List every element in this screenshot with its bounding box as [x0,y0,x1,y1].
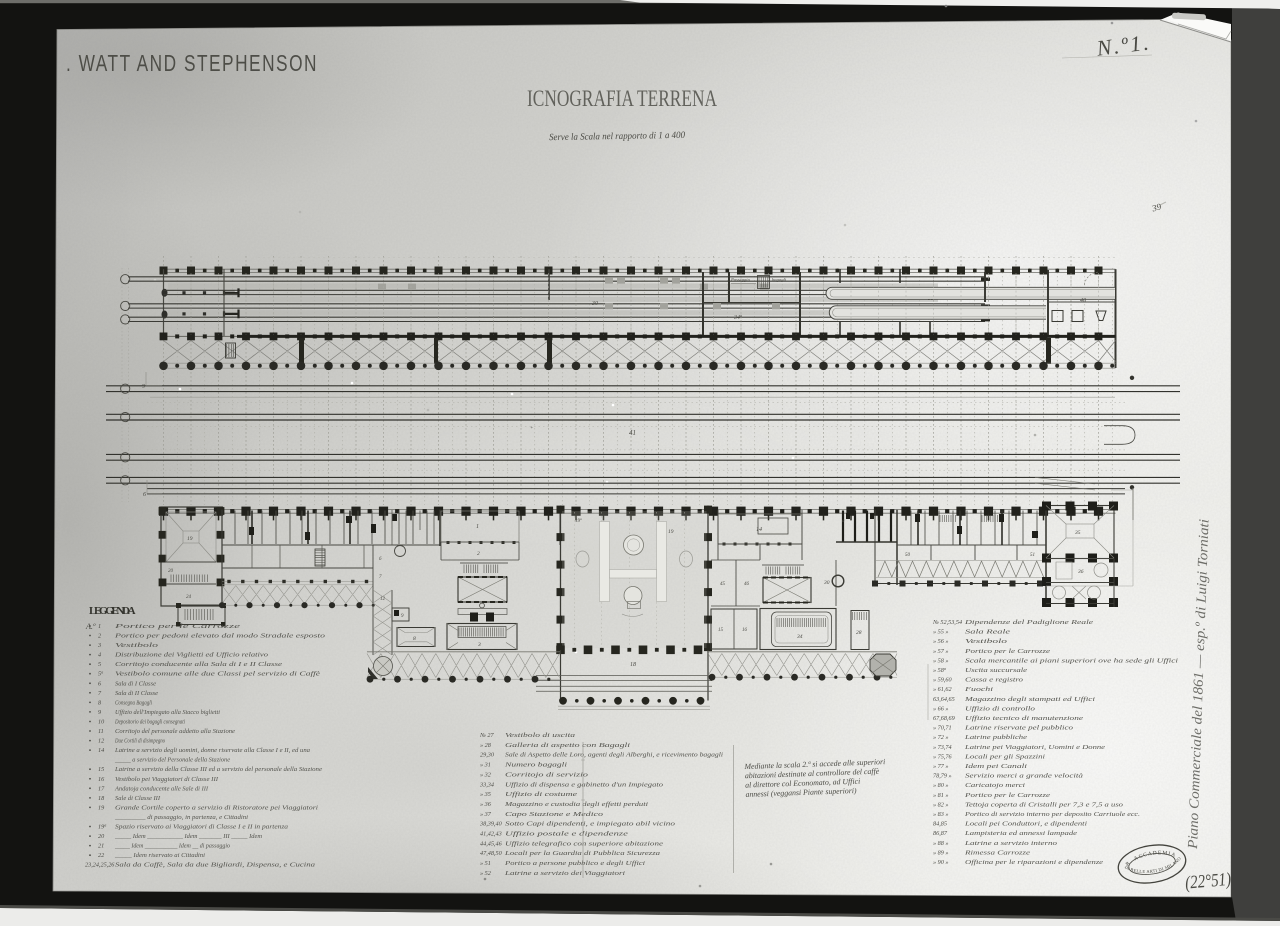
svg-text:Passeggio: Passeggio [730,277,751,282]
svg-text:Locali per gli Spazzini: Locali per gli Spazzini [964,753,1046,760]
svg-text:21: 21 [98,843,104,850]
svg-text:Fuochi: Fuochi [963,686,993,693]
svg-text:17: 17 [98,785,105,792]
svg-text:Sala da Caffè, Sala da due Big: Sala da Caffè, Sala da due Bigliardi, Di… [115,862,316,869]
svg-text:34: 34 [796,633,803,640]
svg-text:10: 10 [98,719,105,726]
svg-text:Portico di servizio interno pe: Portico di servizio interno per deposito… [964,811,1141,818]
svg-text:16: 16 [98,776,105,783]
svg-text:5: 5 [98,661,101,668]
svg-text:38,39,40: 38,39,40 [479,821,503,828]
svg-text:» 58ª: » 58ª [933,667,946,674]
svg-text:» 35: » 35 [480,791,491,798]
svg-text:Due Cortili di disimpegno: Due Cortili di disimpegno [114,738,165,745]
svg-text:bagagli: bagagli [772,277,787,282]
svg-text:» 66 »: » 66 » [933,705,948,712]
svg-text:Latrine a servizio interno: Latrine a servizio interno [964,840,1057,847]
svg-text:Cassa e registro: Cassa e registro [965,677,1023,684]
svg-text:» 37: » 37 [480,811,492,818]
svg-text:6: 6 [143,492,146,498]
svg-text:Consegna Bagagli: Consegna Bagagli [115,699,152,706]
svg-text:Latrine a servizio della Class: Latrine a servizio della Classe III ed a… [114,766,322,773]
svg-text:Lampisteria ed annessi lampade: Lampisteria ed annessi lampade [964,830,1078,837]
svg-text:Sala di I Classe: Sala di I Classe [115,680,156,687]
svg-text:19: 19 [98,804,104,811]
svg-text:20: 20 [98,833,105,840]
svg-text:_____ Idem ___________ Idem __: _____ Idem ___________ Idem _______ III … [114,833,262,840]
svg-text:67,68,69: 67,68,69 [933,715,955,722]
svg-text:Latrine riservate pel pubblico: Latrine riservate pel pubblico [964,725,1073,732]
svg-text:Idem pei Canali: Idem pei Canali [963,763,1027,770]
svg-text:» 61,62: » 61,62 [933,686,952,693]
svg-text:» 31: » 31 [480,762,491,769]
svg-text:» 83 »: » 83 » [933,811,948,818]
svg-text:Latrine a servizio dei Viaggia: Latrine a servizio dei Viaggiatori [504,870,626,877]
svg-text:11: 11 [98,728,104,735]
svg-text:16: 16 [742,628,748,633]
svg-text:Portico a persone pubblico e d: Portico a persone pubblico e degli Uffic… [504,860,646,867]
svg-text:Andatoja conducente alle Sale: Andatoja conducente alle Sale di III [114,785,209,792]
svg-text:Corritojo del personale addett: Corritojo del personale addetto alla Sta… [115,728,235,735]
svg-text:Scala mercantile ai piani supe: Scala mercantile ai piani superiori ove … [965,657,1178,664]
svg-text:36: 36 [1077,569,1084,575]
svg-text:Sala di II Classe: Sala di II Classe [115,690,158,697]
svg-text:» 51: » 51 [480,860,491,867]
svg-text:Rimessa Carrozze: Rimessa Carrozze [964,849,1031,856]
svg-text:Sala Reale: Sala Reale [965,629,1010,636]
svg-text:Portico per le Carrozze: Portico per le Carrozze [964,648,1051,655]
svg-text:24: 24 [186,595,192,600]
svg-text:2: 2 [98,633,101,640]
svg-text:» 90 »: » 90 » [933,859,948,866]
svg-text:» 73,74: » 73,74 [933,744,952,751]
svg-text:Corritojo conducente alla Sala: Corritojo conducente alla Sala di I e II… [115,661,282,668]
svg-text:Latrine a servizio degli uomin: Latrine a servizio degli uomini, donne r… [114,747,311,754]
svg-text:Tettoja coperta di Cristalli p: Tettoja coperta di Cristalli per 7,3 e 7… [965,801,1123,808]
svg-text:Uffizio di costume: Uffizio di costume [505,791,577,798]
svg-text:3: 3 [97,642,101,649]
svg-text:19ª: 19ª [575,518,582,524]
svg-text:Vestibolo pei Viaggiatori di C: Vestibolo pei Viaggiatori di Classe III [115,776,219,783]
svg-text:45: 45 [720,582,726,587]
svg-text:Sale di Aspetto delle Loro, ag: Sale di Aspetto delle Loro, agenti degli… [505,752,723,759]
svg-text:» 82 »: » 82 » [933,801,948,808]
svg-text:41,42,43: 41,42,43 [480,831,502,838]
svg-text:Locali pei Conduttori, e dipen: Locali pei Conduttori, e dipendenti [964,821,1088,828]
svg-text:№ 52,53,54: № 52,53,54 [932,619,962,626]
svg-text:Uffizio telegrafico con superi: Uffizio telegrafico con superiore abitaz… [505,840,663,847]
svg-text:. WATT AND STEPHENSON: . WATT AND STEPHENSON [66,50,318,76]
svg-text:30: 30 [823,580,830,586]
svg-text:63,64,65: 63,64,65 [933,696,955,703]
svg-text:19ª: 19ª [98,824,106,831]
svg-text:Vestibolo di uscita: Vestibolo di uscita [505,732,576,739]
svg-text:40: 40 [1080,297,1086,304]
svg-text:» 56 »: » 56 » [933,638,948,645]
svg-text:Uscita succursale: Uscita succursale [965,667,1027,674]
svg-text:» 28: » 28 [480,742,492,749]
svg-text:» 32: » 32 [480,771,491,778]
svg-text:34ª: 34ª [733,314,742,321]
svg-text:» 58 »: » 58 » [933,657,948,664]
svg-text:15: 15 [98,766,104,773]
svg-text:9: 9 [98,709,101,716]
svg-text:» 77 »: » 77 » [933,763,948,770]
svg-text:29,30: 29,30 [480,752,495,759]
svg-text:Uffizio tecnico di manutenzion: Uffizio tecnico di manutenzione [965,715,1083,722]
svg-text:86,87: 86,87 [933,830,948,837]
svg-text:Caricatojo merci: Caricatojo merci [965,782,1025,789]
svg-text:84,85: 84,85 [933,821,947,828]
svg-text:» 70,71: » 70,71 [933,725,952,732]
svg-text:» 89 »: » 89 » [933,849,948,856]
svg-text:28: 28 [856,630,862,636]
svg-text:18: 18 [630,662,636,668]
svg-text:» 36: » 36 [480,801,492,808]
svg-text:19: 19 [187,536,193,542]
svg-text:51: 51 [1030,553,1035,558]
svg-text:Locali per la Guardia di Pubbl: Locali per la Guardia di Pubblica Sicure… [504,850,661,857]
svg-text:8: 8 [413,636,416,642]
svg-text:Corritojo di servizio: Corritojo di servizio [505,771,589,778]
svg-text:44,45,46: 44,45,46 [480,840,503,847]
svg-text:9: 9 [142,384,145,390]
svg-text:Portico per le Carrozze: Portico per le Carrozze [113,623,240,630]
svg-text:» 57 »: » 57 » [933,648,948,655]
svg-text:50: 50 [905,553,911,558]
svg-text:» 55 »: » 55 » [933,629,948,636]
svg-text:Grande Cortile coperto a servi: Grande Cortile coperto a servizio di Ris… [115,804,318,811]
svg-text:41: 41 [629,429,636,437]
svg-text:30: 30 [591,301,598,307]
svg-text:Distribuzione dei Viglietti: Distribuzione dei Viglietti ed Ufficio r… [114,652,269,659]
svg-text:4: 4 [98,652,101,659]
svg-text:_________ di passaggio, in par: _________ di passaggio, in partenza, e C… [114,814,248,821]
svg-text:ICNOGRAFIA TERRENA: ICNOGRAFIA TERRENA [527,86,717,111]
svg-text:Uffizio postale e dipendenze: Uffizio postale e dipendenze [505,831,628,838]
svg-text:Officina per le riparazioni e: Officina per le riparazioni e dipendenze [965,859,1103,866]
svg-text:(22°51): (22°51) [1184,870,1232,894]
svg-text:78,79 »: 78,79 » [933,773,952,780]
svg-text:Magazzino e custodia degli eff: Magazzino e custodia degli effetti perdu… [504,801,649,808]
svg-text:+: + [530,426,533,431]
svg-text:Vestibolo: Vestibolo [115,642,159,649]
svg-text:Latrine pei Viaggiatori, Uomin: Latrine pei Viaggiatori, Uomini e Donne [964,744,1106,751]
svg-text:35: 35 [1074,530,1081,536]
svg-text:Uffizio dell'Impiegato alla St: Uffizio dell'Impiegato alla Stacco bigli… [115,709,220,716]
svg-text:» 81 »: » 81 » [933,792,948,799]
svg-text:Spazio riservato ai Viaggiator: Spazio riservato ai Viaggiatori di Class… [115,824,289,831]
svg-text:_____ a servizio del Personale: _____ a servizio del Personale della Sta… [114,757,230,764]
svg-text:Portico per le Carrozze: Portico per le Carrozze [964,792,1051,799]
svg-text:Servizio merci a grande veloci: Servizio merci a grande velocità [965,773,1083,780]
svg-text:» 72 »: » 72 » [933,734,948,741]
svg-text:_____ Idem riservato ai Cittad: _____ Idem riservato ai Cittadini [114,852,205,859]
svg-text:Dipendenze del Padiglione Real: Dipendenze del Padiglione Reale [964,619,1094,626]
svg-text:LEGGENDA: LEGGENDA [89,605,137,617]
svg-text:47,48,50: 47,48,50 [480,850,503,857]
svg-text:Vestibolo: Vestibolo [965,638,1007,645]
svg-text:Latrine pubbliche: Latrine pubbliche [964,734,1028,741]
svg-text:14: 14 [756,526,762,533]
svg-text:20: 20 [168,569,174,574]
svg-text:Capo Stazione e Medico: Capo Stazione e Medico [505,811,604,818]
svg-text:Numero bagagli: Numero bagagli [504,762,568,769]
svg-text:2: 2 [477,551,480,557]
svg-text:18: 18 [98,795,105,802]
svg-text:Sale di Classe III: Sale di Classe III [115,795,161,802]
svg-text:3: 3 [477,642,481,648]
svg-text:19: 19 [668,529,674,535]
svg-text:№ 27: № 27 [479,732,494,739]
svg-text:33,34: 33,34 [479,781,494,788]
svg-text:» 52: » 52 [480,870,491,877]
svg-text:Vestibolo comune alle due Clas: Vestibolo comune alle due Classi pel ser… [115,671,320,678]
svg-text:Portico per pedoni elevato dal: Portico per pedoni elevato dal modo Stra… [114,633,327,640]
svg-text:1: 1 [98,623,101,630]
svg-text:22: 22 [98,852,104,859]
svg-text:» 59,60: » 59,60 [933,677,952,684]
svg-text:12: 12 [98,738,104,745]
svg-text:Galleria di aspetto con Bagagl: Galleria di aspetto con Bagagli [505,742,630,749]
svg-text:46: 46 [744,582,750,587]
svg-text:» 80 »: » 80 » [933,782,948,789]
svg-text:Magazzino degli stampati ed U: Magazzino degli stampati ed Uffici [964,696,1096,703]
svg-text:» 88 »: » 88 » [933,840,948,847]
svg-text:Uffizio di dispensa e gabinett: Uffizio di dispensa e gabinetto d'un Imp… [505,781,664,788]
svg-text:5ª: 5ª [98,671,103,678]
svg-text:14: 14 [98,747,104,754]
svg-text:15: 15 [718,628,724,633]
svg-text:» 75,76: » 75,76 [933,753,952,760]
svg-text:1: 1 [476,524,479,530]
svg-text:12: 12 [380,597,386,602]
svg-text:Uffizio di controllo: Uffizio di controllo [965,705,1035,712]
svg-text:23,24,25,26: 23,24,25,26 [85,862,115,869]
svg-text:Depositorio dei bagagli conseg: Depositorio dei bagagli consegnati [114,719,185,726]
svg-text:_____ Idem ___________ Idem __: _____ Idem ___________ Idem __ di passag… [114,843,231,850]
svg-text:Sotto Capi dipendenti, e impie: Sotto Capi dipendenti, e impiegato abil … [505,821,676,828]
